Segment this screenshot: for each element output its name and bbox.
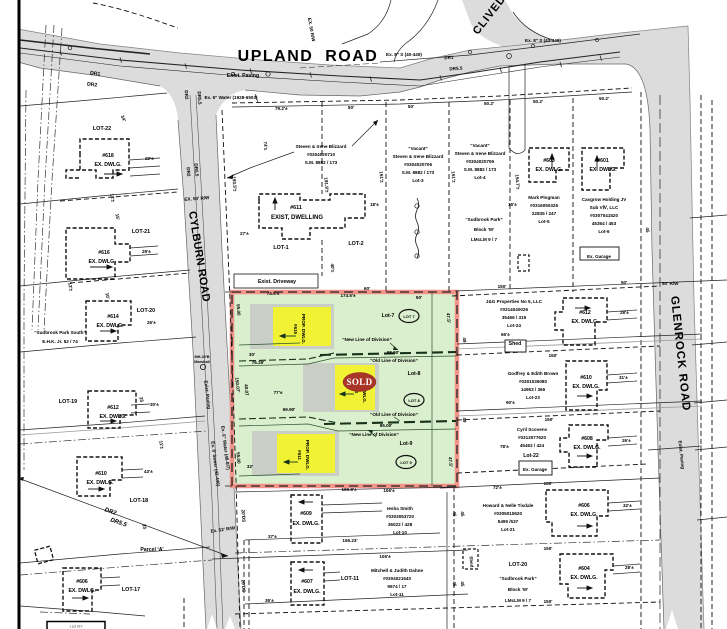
svg-text:Lot-10: Lot-10: [393, 530, 407, 535]
svg-text:Iesha Smith: Iesha Smith: [387, 506, 413, 511]
svg-text:Marshall: Marshall: [194, 360, 209, 364]
svg-text:Godfrey & Edith Brown: Godfrey & Edith Brown: [508, 371, 559, 376]
svg-text:Ex. Garage: Ex. Garage: [523, 467, 547, 472]
svg-text:EX. DWLG.: EX. DWLG.: [292, 521, 320, 527]
svg-text:S.M. 8882 / 173: S.M. 8882 / 173: [402, 170, 435, 175]
svg-text:Mark Plogman: Mark Plogman: [528, 195, 560, 200]
svg-text:36022 / 428: 36022 / 428: [388, 522, 413, 527]
svg-text:78′±: 78′±: [500, 444, 509, 449]
svg-text:Lot-11: Lot-11: [390, 592, 404, 597]
svg-text:90′±: 90′±: [506, 400, 515, 405]
svg-text:#616: #616: [98, 250, 110, 256]
svg-text:EX. DWLG.: EX. DWLG.: [99, 414, 127, 420]
svg-text:50.2′: 50.2′: [599, 96, 610, 101]
svg-text:50.2′: 50.2′: [533, 99, 544, 104]
svg-text:Exist. Paving: Exist. Paving: [227, 73, 259, 79]
svg-text:Lot-23: Lot-23: [526, 395, 540, 400]
svg-text:EX. DWLG.: EX. DWLG.: [94, 162, 122, 168]
svg-text:LOT-1: LOT-1: [273, 245, 288, 251]
svg-text:EX. DWLG.: EX. DWLG.: [88, 259, 116, 265]
svg-text:#611: #611: [297, 450, 302, 460]
svg-text:LOT 8: LOT 8: [408, 398, 420, 403]
svg-text:45: 45: [452, 511, 457, 517]
svg-text:EX. DWLG.: EX. DWLG.: [572, 384, 600, 390]
svg-text:Lot-9: Lot-9: [400, 441, 413, 447]
svg-text:150′: 150′: [545, 417, 555, 422]
svg-text:49: 49: [462, 337, 467, 343]
svg-text:55.00: 55.00: [236, 452, 242, 464]
svg-text:#606: #606: [76, 579, 88, 585]
svg-text:LOT-17: LOT-17: [122, 587, 140, 593]
svg-text:DR1: DR1: [90, 70, 101, 77]
svg-text:Casgrow Holding JV: Casgrow Holding JV: [582, 197, 628, 202]
svg-text:EX. DWLG.: EX. DWLG.: [96, 323, 124, 329]
svg-text:50′: 50′: [621, 280, 628, 285]
svg-text:Ex. 6" Water (1928-6503): Ex. 6" Water (1928-6503): [204, 95, 258, 100]
svg-text:14953 / 366: 14953 / 366: [521, 387, 546, 392]
svg-text:DR2: DR2: [87, 81, 98, 88]
svg-text:Lot-3: Lot-3: [412, 178, 424, 183]
svg-text:95.00′: 95.00′: [380, 423, 393, 428]
svg-text:J&G Properties No 5, LLC: J&G Properties No 5, LLC: [486, 299, 543, 304]
svg-text:Exist. Driveway: Exist. Driveway: [258, 279, 296, 285]
svg-text:50.2′: 50.2′: [484, 101, 495, 106]
svg-text:106′±: 106′±: [383, 488, 395, 493]
svg-text:#612: #612: [107, 405, 119, 411]
svg-text:Lot-4: Lot-4: [474, 175, 486, 180]
svg-text:77′±: 77′±: [274, 390, 283, 395]
svg-text:EX. DWLG.: EX. DWLG.: [573, 445, 601, 451]
svg-text:151′±: 151′±: [379, 171, 385, 183]
svg-text:LOT-20: LOT-20: [509, 562, 527, 568]
svg-text:50′ R/W: 50′ R/W: [662, 281, 679, 286]
svg-text:40′±: 40′±: [330, 263, 336, 273]
svg-text:Steven & Irene Blizzard: Steven & Irene Blizzard: [393, 154, 444, 159]
svg-text:1 1/2 STY: 1 1/2 STY: [69, 625, 82, 629]
svg-text:“Vacant”: “Vacant”: [470, 143, 489, 148]
svg-text:Shed: Shed: [509, 341, 522, 347]
svg-text:#610: #610: [580, 375, 592, 381]
svg-text:LOT 9: LOT 9: [400, 460, 412, 465]
svg-text:“Vacant”: “Vacant”: [408, 146, 427, 151]
svg-text:#0314040026: #0314040026: [500, 307, 529, 312]
svg-text:EX. DWLG.: EX. DWLG.: [571, 319, 599, 325]
svg-text:#0303053720: #0303053720: [386, 514, 415, 519]
svg-text:#603: #603: [543, 158, 555, 164]
svg-text:98.00′: 98.00′: [387, 350, 400, 355]
svg-text:E.H.K. Jr. 52 / 74: E.H.K. Jr. 52 / 74: [42, 339, 78, 344]
svg-text:Lot-22: Lot-22: [523, 453, 539, 459]
svg-text:174.5′±: 174.5′±: [340, 293, 356, 298]
svg-text:“New Line of Division”: “New Line of Division”: [349, 432, 399, 437]
svg-text:106′±: 106′±: [379, 554, 391, 559]
svg-text:EX. DWLG.: EX. DWLG.: [68, 588, 96, 594]
svg-text:49: 49: [462, 417, 467, 423]
svg-text:LOT 7: LOT 7: [403, 314, 415, 319]
svg-text:#0304020706: #0304020706: [466, 159, 495, 164]
svg-text:28′±: 28′±: [620, 310, 629, 315]
svg-text:“Sudbrook Park South”: “Sudbrook Park South”: [34, 330, 86, 335]
svg-text:74′±: 74′±: [263, 141, 269, 151]
svg-text:UPLAND ROAD: UPLAND ROAD: [238, 48, 379, 65]
svg-text:150′: 150′: [544, 599, 554, 604]
svg-text:LMcLM 9 / 7: LMcLM 9 / 7: [471, 237, 497, 242]
svg-text:35′±: 35′±: [265, 598, 274, 603]
svg-text:#0304021640: #0304021640: [383, 576, 412, 581]
svg-text:#608: #608: [581, 436, 593, 442]
svg-text:“Old Line of Division”: “Old Line of Division”: [370, 412, 418, 417]
svg-text:EX. DWLG.: EX. DWLG.: [535, 167, 563, 173]
svg-text:Cyril Scovens: Cyril Scovens: [517, 427, 548, 432]
svg-text:Steven & Irene Blizzard: Steven & Irene Blizzard: [455, 151, 506, 156]
svg-text:169.8′±: 169.8′±: [341, 487, 357, 492]
svg-text:#0304020710: #0304020710: [307, 152, 336, 157]
svg-text:45462 / 424: 45462 / 424: [520, 443, 545, 448]
svg-text:74.5′±: 74.5′±: [267, 291, 280, 296]
svg-text:#0307041520: #0307041520: [590, 213, 619, 218]
svg-text:EX. DWLG.: EX. DWLG.: [570, 575, 598, 581]
svg-text:166.23′: 166.23′: [342, 538, 358, 543]
svg-text:#612: #612: [579, 310, 591, 316]
svg-text:69.90′: 69.90′: [283, 407, 296, 412]
svg-text:Ex. 8" S (43-448): Ex. 8" S (43-448): [525, 38, 561, 43]
svg-text:15′±: 15′±: [508, 202, 517, 207]
svg-text:#615: #615: [293, 324, 298, 335]
svg-text:LOT-20: LOT-20: [137, 308, 155, 314]
svg-text:#0301036080: #0301036080: [519, 379, 548, 384]
svg-text:PROP. DWLG.: PROP. DWLG.: [305, 440, 310, 470]
svg-text:18′±: 18′±: [370, 202, 379, 207]
svg-text:S.M. 8882 / 173: S.M. 8882 / 173: [305, 160, 338, 165]
svg-text:#606: #606: [578, 503, 590, 509]
svg-text:SOLD: SOLD: [346, 377, 372, 387]
svg-text:47.5′: 47.5′: [446, 313, 452, 324]
svg-text:150′: 150′: [549, 353, 559, 358]
svg-text:76.25′: 76.25′: [252, 360, 265, 365]
svg-text:43′±: 43′±: [144, 469, 153, 474]
svg-text:DR2: DR2: [186, 167, 192, 177]
svg-text:79.2′±: 79.2′±: [275, 106, 288, 111]
svg-text:22′±: 22′±: [145, 156, 154, 161]
svg-text:Steven & Irene Blizzard: Steven & Irene Blizzard: [296, 144, 347, 149]
svg-text:150′: 150′: [544, 546, 554, 551]
svg-text:31′±: 31′±: [619, 375, 628, 380]
svg-text:LOT-21: LOT-21: [132, 229, 150, 235]
svg-text:#618: #618: [102, 153, 114, 159]
svg-text:“New Line of Division”: “New Line of Division”: [342, 337, 392, 342]
svg-text:Lot-21: Lot-21: [501, 527, 515, 532]
svg-text:60′: 60′: [364, 286, 371, 291]
svg-text:LOT-22: LOT-22: [93, 126, 111, 132]
svg-text:LOT-11: LOT-11: [341, 576, 359, 582]
svg-text:S.M. 8882 / 173: S.M. 8882 / 173: [464, 167, 497, 172]
svg-text:45: 45: [460, 581, 465, 587]
svg-text:50′: 50′: [348, 105, 355, 110]
svg-text:37′±: 37′±: [268, 534, 277, 539]
svg-text:#0313077620: #0313077620: [518, 435, 547, 440]
svg-text:35466 / 319: 35466 / 319: [502, 315, 527, 320]
svg-text:30′: 30′: [249, 352, 256, 357]
svg-text:30′±: 30′±: [150, 402, 159, 407]
svg-text:40.07: 40.07: [244, 384, 250, 396]
svg-text:EX. DWLG.: EX. DWLG.: [589, 167, 617, 173]
svg-text:29′±: 29′±: [142, 249, 151, 254]
svg-text:Lot-7: Lot-7: [382, 313, 395, 319]
svg-text:Block ‘M’: Block ‘M’: [474, 227, 494, 232]
svg-text:45: 45: [460, 511, 465, 517]
svg-text:“Sudbrook Park”: “Sudbrook Park”: [499, 576, 536, 581]
svg-text:50′: 50′: [408, 104, 415, 109]
svg-text:Lot-8: Lot-8: [408, 371, 421, 377]
svg-text:Howard & Nelle Tisdale: Howard & Nelle Tisdale: [483, 503, 534, 508]
svg-text:LOT-2: LOT-2: [348, 241, 363, 247]
svg-text:DR5.5: DR5.5: [197, 91, 203, 105]
svg-text:PROP. DWLG.: PROP. DWLG.: [301, 314, 306, 344]
svg-text:150′: 150′: [544, 481, 554, 486]
svg-text:Lot-24: Lot-24: [507, 323, 521, 328]
svg-text:45354 / 453: 45354 / 453: [592, 221, 617, 226]
svg-text:#0304020706: #0304020706: [404, 162, 433, 167]
svg-text:LOT-18: LOT-18: [130, 498, 148, 504]
svg-text:#0305015520: #0305015520: [494, 511, 523, 516]
svg-text:9674 / 17: 9674 / 17: [387, 584, 407, 589]
svg-text:MH-30′B: MH-30′B: [194, 355, 209, 359]
svg-text:#0316050325: #0316050325: [530, 203, 559, 208]
svg-text:27′±: 27′±: [240, 231, 249, 236]
svg-text:#604: #604: [578, 566, 590, 572]
svg-text:150′: 150′: [498, 284, 508, 289]
svg-text:Lot-5: Lot-5: [538, 219, 550, 224]
svg-text:Block ‘M’: Block ‘M’: [508, 587, 528, 592]
svg-text:LOT-19: LOT-19: [59, 399, 77, 405]
svg-text:151′±: 151′±: [451, 171, 457, 183]
svg-text:66′±: 66′±: [501, 332, 510, 337]
svg-text:EX. DWLG.: EX. DWLG.: [86, 480, 114, 486]
svg-text:LMcLM 9 / 7: LMcLM 9 / 7: [505, 598, 531, 603]
svg-text:#610: #610: [95, 471, 107, 477]
svg-text:“Old Line of Division”: “Old Line of Division”: [370, 358, 418, 363]
svg-text:22835 / 247: 22835 / 247: [532, 211, 557, 216]
svg-text:Parcel ‘A’: Parcel ‘A’: [140, 547, 164, 553]
svg-text:50′: 50′: [416, 295, 423, 300]
svg-text:Mitchell & Judith Dahne: Mitchell & Judith Dahne: [371, 568, 424, 573]
svg-text:DR2: DR2: [184, 90, 189, 100]
svg-text:DR1: DR1: [444, 55, 454, 61]
svg-text:#601: #601: [597, 158, 609, 164]
svg-text:EX. DWLG.: EX. DWLG.: [293, 589, 321, 595]
svg-text:28′±: 28′±: [625, 565, 634, 570]
svg-text:Sub VⅣ, LLC: Sub VⅣ, LLC: [590, 204, 619, 210]
svg-text:#609: #609: [300, 511, 312, 517]
svg-text:26′±: 26′±: [622, 438, 631, 443]
svg-text:45: 45: [645, 227, 650, 233]
svg-text:45: 45: [452, 581, 457, 587]
svg-text:#614: #614: [107, 314, 119, 320]
svg-text:Ex. Garage: Ex. Garage: [587, 254, 611, 259]
svg-text:26′±: 26′±: [147, 320, 156, 325]
svg-text:5495 /537: 5495 /537: [498, 519, 519, 524]
svg-text:#611: #611: [290, 205, 302, 211]
svg-text:Ex. 8" S (40-449): Ex. 8" S (40-449): [386, 52, 422, 57]
svg-text:32′: 32′: [247, 464, 254, 469]
svg-text:47.5′: 47.5′: [448, 457, 454, 468]
svg-text:#607: #607: [301, 579, 313, 585]
svg-text:Shed: Shed: [469, 556, 475, 568]
svg-text:72′±: 72′±: [493, 485, 502, 490]
svg-text:“Sudbrook Park”: “Sudbrook Park”: [465, 217, 502, 222]
svg-text:DR5.5: DR5.5: [449, 66, 463, 72]
svg-text:32′±: 32′±: [623, 503, 632, 508]
svg-text:EXIST, DWELLING: EXIST, DWELLING: [271, 215, 323, 221]
svg-text:Lot-6: Lot-6: [598, 229, 610, 234]
svg-text:EX. DWLG.: EX. DWLG.: [570, 512, 598, 518]
svg-text:95.00: 95.00: [236, 304, 242, 316]
